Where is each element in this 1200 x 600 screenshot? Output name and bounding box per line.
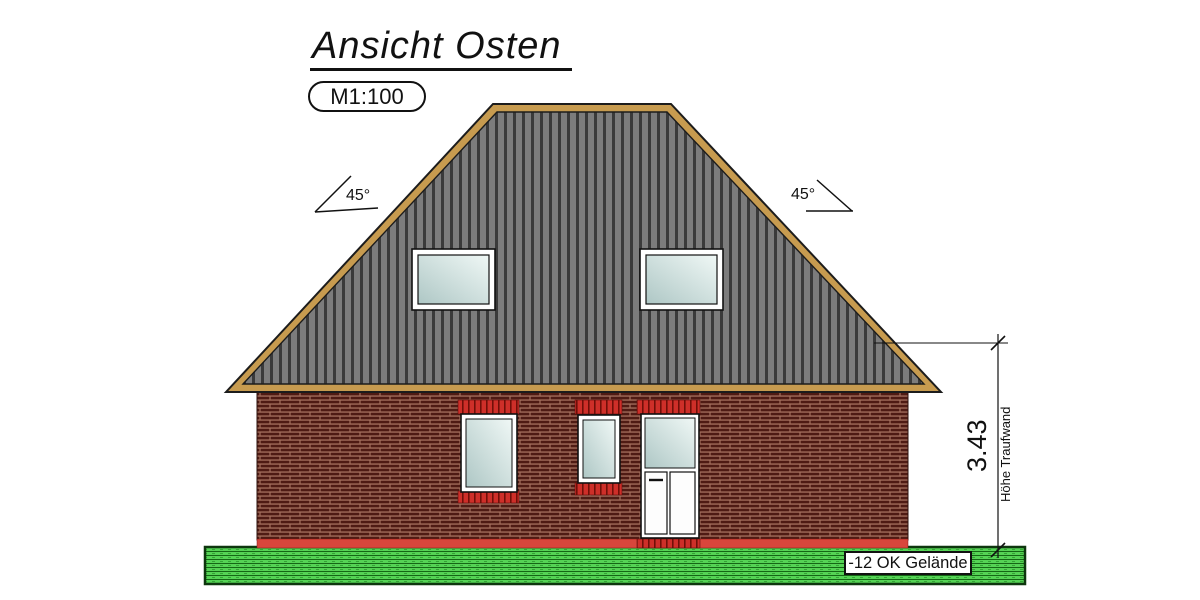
elevation-drawing-sheet: Ansicht Osten M1:100 45° 45° 3.43 Höhe T… xyxy=(0,0,1200,600)
ground-level-label: -12 OK Gelände xyxy=(844,551,972,575)
roof-angle-label-left: 45° xyxy=(346,188,370,204)
door-panel-left xyxy=(645,472,667,534)
roof-window-right xyxy=(640,249,723,310)
drawing-title: Ansicht Osten xyxy=(310,27,572,71)
scale-badge: M1:100 xyxy=(308,81,426,112)
door-lintel xyxy=(637,400,700,414)
window-left xyxy=(458,400,519,503)
roof xyxy=(226,104,941,392)
window-center xyxy=(575,400,622,495)
door-panel-right xyxy=(670,472,695,534)
window-center-sill xyxy=(575,483,622,495)
house-elevation-drawing xyxy=(0,0,1200,600)
entrance-door xyxy=(637,400,700,548)
wall-base-band xyxy=(257,539,908,548)
roof-cladding xyxy=(243,112,924,384)
eaves-height-label: Höhe Traufwand xyxy=(999,398,1013,510)
window-center-lintel xyxy=(575,400,622,414)
eaves-height-value: 3.43 xyxy=(962,408,992,484)
roof-angle-label-right: 45° xyxy=(791,187,815,203)
roof-window-left xyxy=(412,249,495,310)
door-threshold xyxy=(637,539,700,548)
door-glass xyxy=(645,418,695,468)
window-left-lintel xyxy=(458,400,519,414)
